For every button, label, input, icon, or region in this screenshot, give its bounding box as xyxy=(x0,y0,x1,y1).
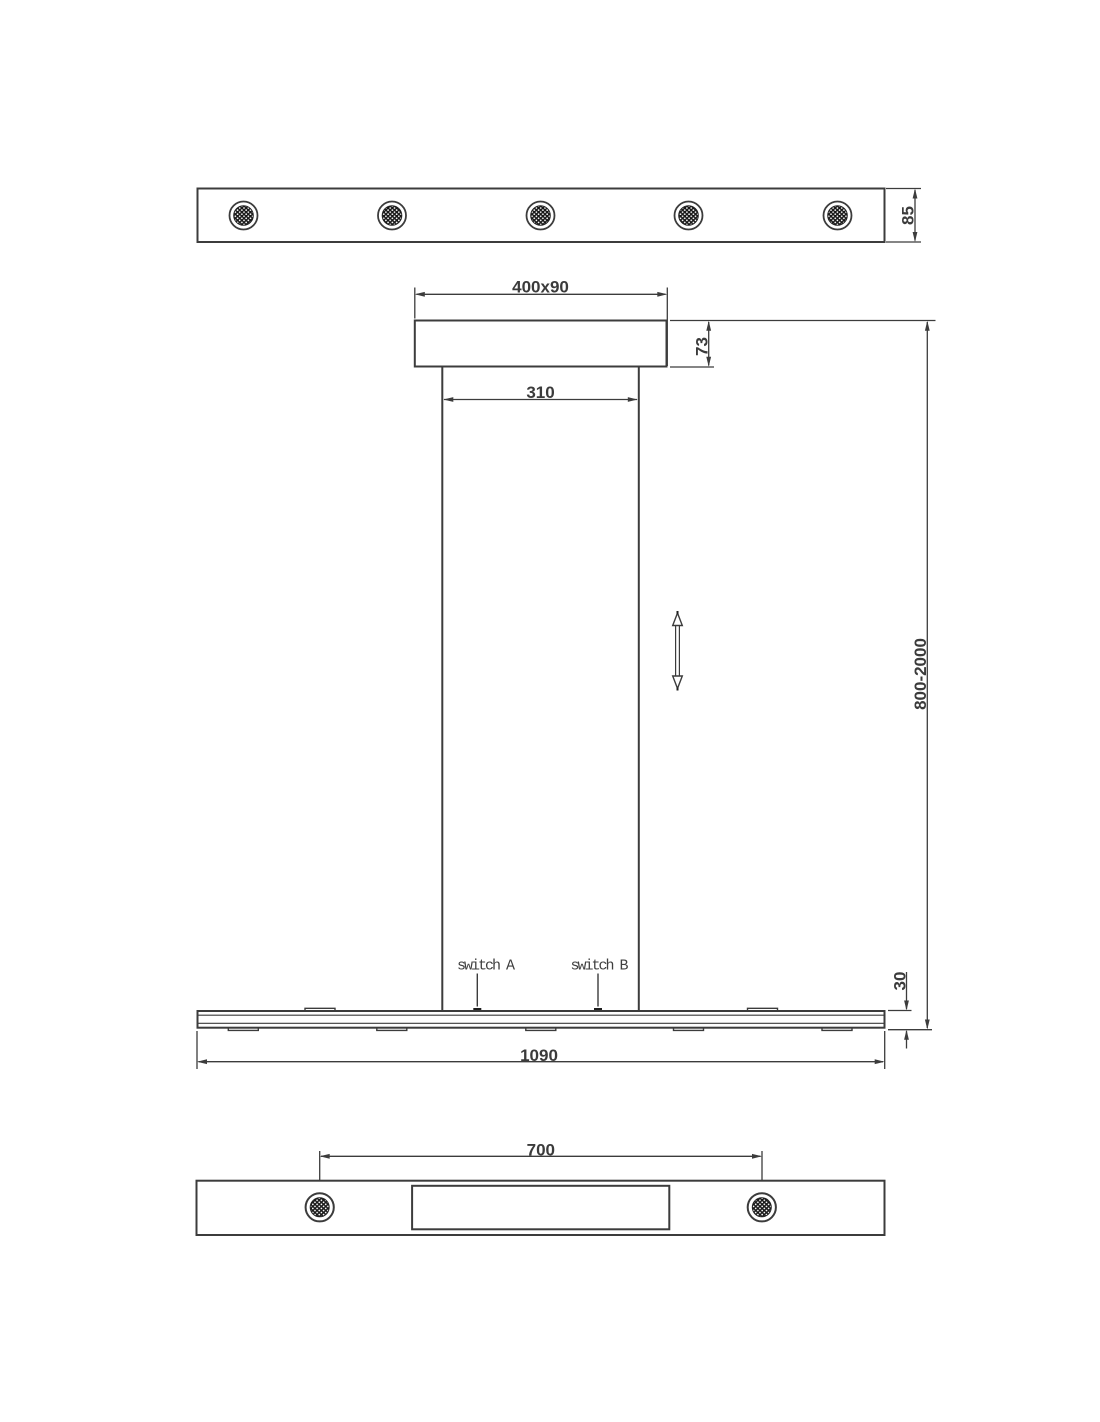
svg-text:switch B: switch B xyxy=(571,958,629,975)
svg-text:1090: 1090 xyxy=(520,1046,558,1065)
svg-text:switch A: switch A xyxy=(457,958,515,975)
svg-text:73: 73 xyxy=(692,337,711,356)
svg-text:800-2000: 800-2000 xyxy=(911,638,930,710)
svg-text:85: 85 xyxy=(899,206,918,225)
svg-text:30: 30 xyxy=(890,972,909,991)
svg-text:400x90: 400x90 xyxy=(512,277,569,296)
